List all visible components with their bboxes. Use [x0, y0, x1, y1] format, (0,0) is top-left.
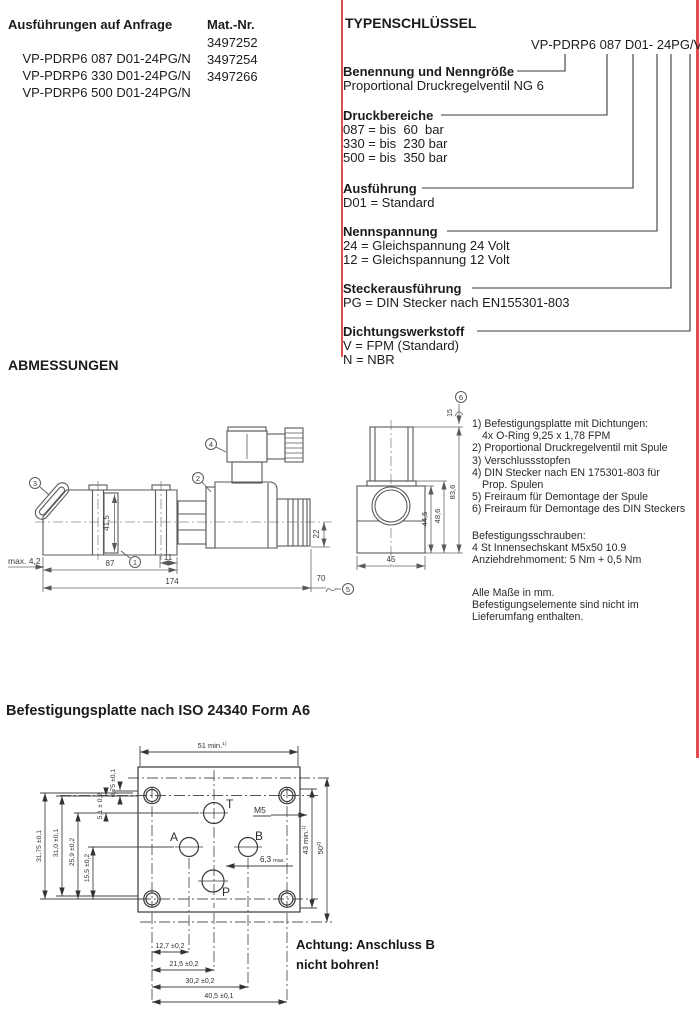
dim-15-label: 15 — [447, 409, 454, 417]
mat-nr: 3497254 — [207, 52, 258, 68]
mat-nr: 3497252 — [207, 35, 258, 51]
port-p-label: P — [222, 885, 230, 899]
dim-174-label: 174 — [165, 577, 179, 586]
note-line: 2) Proportional Druckregelventil mit Spu… — [472, 442, 700, 454]
dim-6-3-label: 6,3max. — [260, 855, 286, 864]
dimension-notes: 1) Befestigungsplatte mit Dichtungen: 4x… — [472, 418, 700, 624]
note-line: 3) Verschlussstopfen — [472, 455, 700, 467]
dim-12-7-label: 12,7 ±0,2 — [155, 943, 184, 950]
typekey-section-dichtung: Dichtungswerkstoff V = FPM (Standard) N … — [343, 324, 464, 366]
note-line: 4x O-Ring 9,25 x 1,78 FPM — [472, 430, 700, 442]
requests-table-title: Ausführungen auf Anfrage — [8, 17, 172, 33]
mat-nr: 3497266 — [207, 69, 258, 85]
note-line: 1) Befestigungsplatte mit Dichtungen: — [472, 418, 700, 430]
dim-5-1-label: 5,1 ± 0,2 — [97, 793, 104, 820]
warning-line: nicht bohren! — [296, 955, 435, 975]
balloon-1: 1 — [133, 558, 137, 567]
plate-title: Befestigungsplatte nach ISO 24340 Form A… — [6, 703, 310, 719]
dim-40-5-label: 40,5 ±0,1 — [204, 993, 233, 1000]
dim-21-5-label: 21,5 ±0,2 — [169, 961, 198, 968]
dim-83-6-label: 83,6 — [448, 485, 457, 500]
dim-51min-label: 51 min.1) — [198, 741, 227, 750]
balloon-4: 4 — [209, 440, 213, 449]
plate-outline — [138, 767, 300, 912]
screws-line: Befestigungsschrauben: — [472, 530, 700, 542]
dim-15-5-label: 15,5 ±0,2 — [84, 854, 91, 883]
dim-41-5-label: 41,5 — [102, 515, 111, 531]
note-line: 6) Freiraum für Demontage des DIN Stecke… — [472, 503, 700, 515]
footer-line: Lieferumfang enthalten. — [472, 611, 700, 623]
dim-22-label: 22 — [312, 529, 321, 538]
m5-thread-label: M5 — [254, 805, 266, 815]
typekey-section-ausfuehrung: Ausführung D01 = Standard — [343, 181, 434, 209]
dim-31-0-label: 31,0 ±0,1 — [53, 829, 60, 858]
dim-11-label: 11 — [164, 553, 173, 562]
footer-line: Alle Maße in mm. — [472, 587, 700, 599]
valve-dimension-drawing: max. 4,2 87 11 174 70 41,5 22 45 44,5 48… — [0, 380, 475, 625]
dim-max42-label: max. 4,2 — [8, 556, 41, 566]
type-code: VP-PDRP6 500 D01-24PG/N — [22, 85, 190, 100]
dimensions-title: ABMESSUNGEN — [8, 357, 118, 373]
screws-line: Anziehdrehmoment: 5 Nm + 0,5 Nm — [472, 554, 700, 566]
balloon-2: 2 — [196, 474, 200, 483]
warning-line: Achtung: Anschluss B — [296, 935, 435, 955]
note-line: 4) DIN Stecker nach EN 175301-803 für — [472, 467, 700, 479]
typekey-title: TYPENSCHLÜSSEL — [345, 15, 476, 31]
dim-44-5-label: 44,5 — [420, 512, 429, 527]
dim-43min-label: 43 min.1) — [301, 825, 310, 854]
port-b-label: B — [255, 829, 263, 843]
typekey-section-nennspannung: Nennspannung 24 = Gleichspannung 24 Volt… — [343, 224, 510, 266]
balloon-6: 6 — [459, 393, 463, 402]
footer-line: Befestigungselemente sind nicht im — [472, 599, 700, 611]
typekey-section-stecker: Steckerausführung PG = DIN Stecker nach … — [343, 281, 570, 309]
balloon-3: 3 — [33, 479, 37, 488]
dim-45-label: 45 — [387, 555, 396, 564]
port-t-label: T — [226, 797, 234, 811]
dim-25-9-label: 25,9 ±0,2 — [69, 838, 76, 867]
screws-line: 4 St Innensechskant M5x50 10.9 — [472, 542, 700, 554]
dim-87-label: 87 — [106, 559, 115, 568]
balloon-5: 5 — [346, 585, 350, 594]
dim-50-label: 502) — [316, 841, 325, 854]
typekey-section-druckbereiche: Druckbereiche 087 = bis 60 bar 330 = bis… — [343, 108, 447, 164]
dim-31-75-label: 31,75 ±0,1 — [36, 830, 43, 862]
dim-70-label: 70 — [317, 574, 326, 583]
requests-table-col-mat: Mat.-Nr. — [207, 17, 255, 33]
typekey-section-benennung: Benennung und Nenngröße Proportional Dru… — [343, 64, 544, 92]
datasheet-page: Ausführungen auf Anfrage Mat.-Nr. VP-PDR… — [0, 0, 700, 1015]
note-line: Prop. Spulen — [472, 479, 700, 491]
valve-side-view — [33, 480, 310, 555]
dim-48-6-label: 48,6 — [433, 509, 442, 524]
dim-0-75-label: 0,75 ±0,1 — [110, 769, 117, 798]
din-connector — [227, 427, 303, 483]
note-line: 5) Freiraum für Demontage der Spule — [472, 491, 700, 503]
table-row: VP-PDRP6 500 D01-24PG/N3497266 — [8, 69, 191, 117]
warning-note: Achtung: Anschluss B nicht bohren! — [296, 935, 435, 974]
dim-30-2-label: 30,2 ±0,2 — [185, 978, 214, 985]
port-a-label: A — [170, 830, 178, 844]
